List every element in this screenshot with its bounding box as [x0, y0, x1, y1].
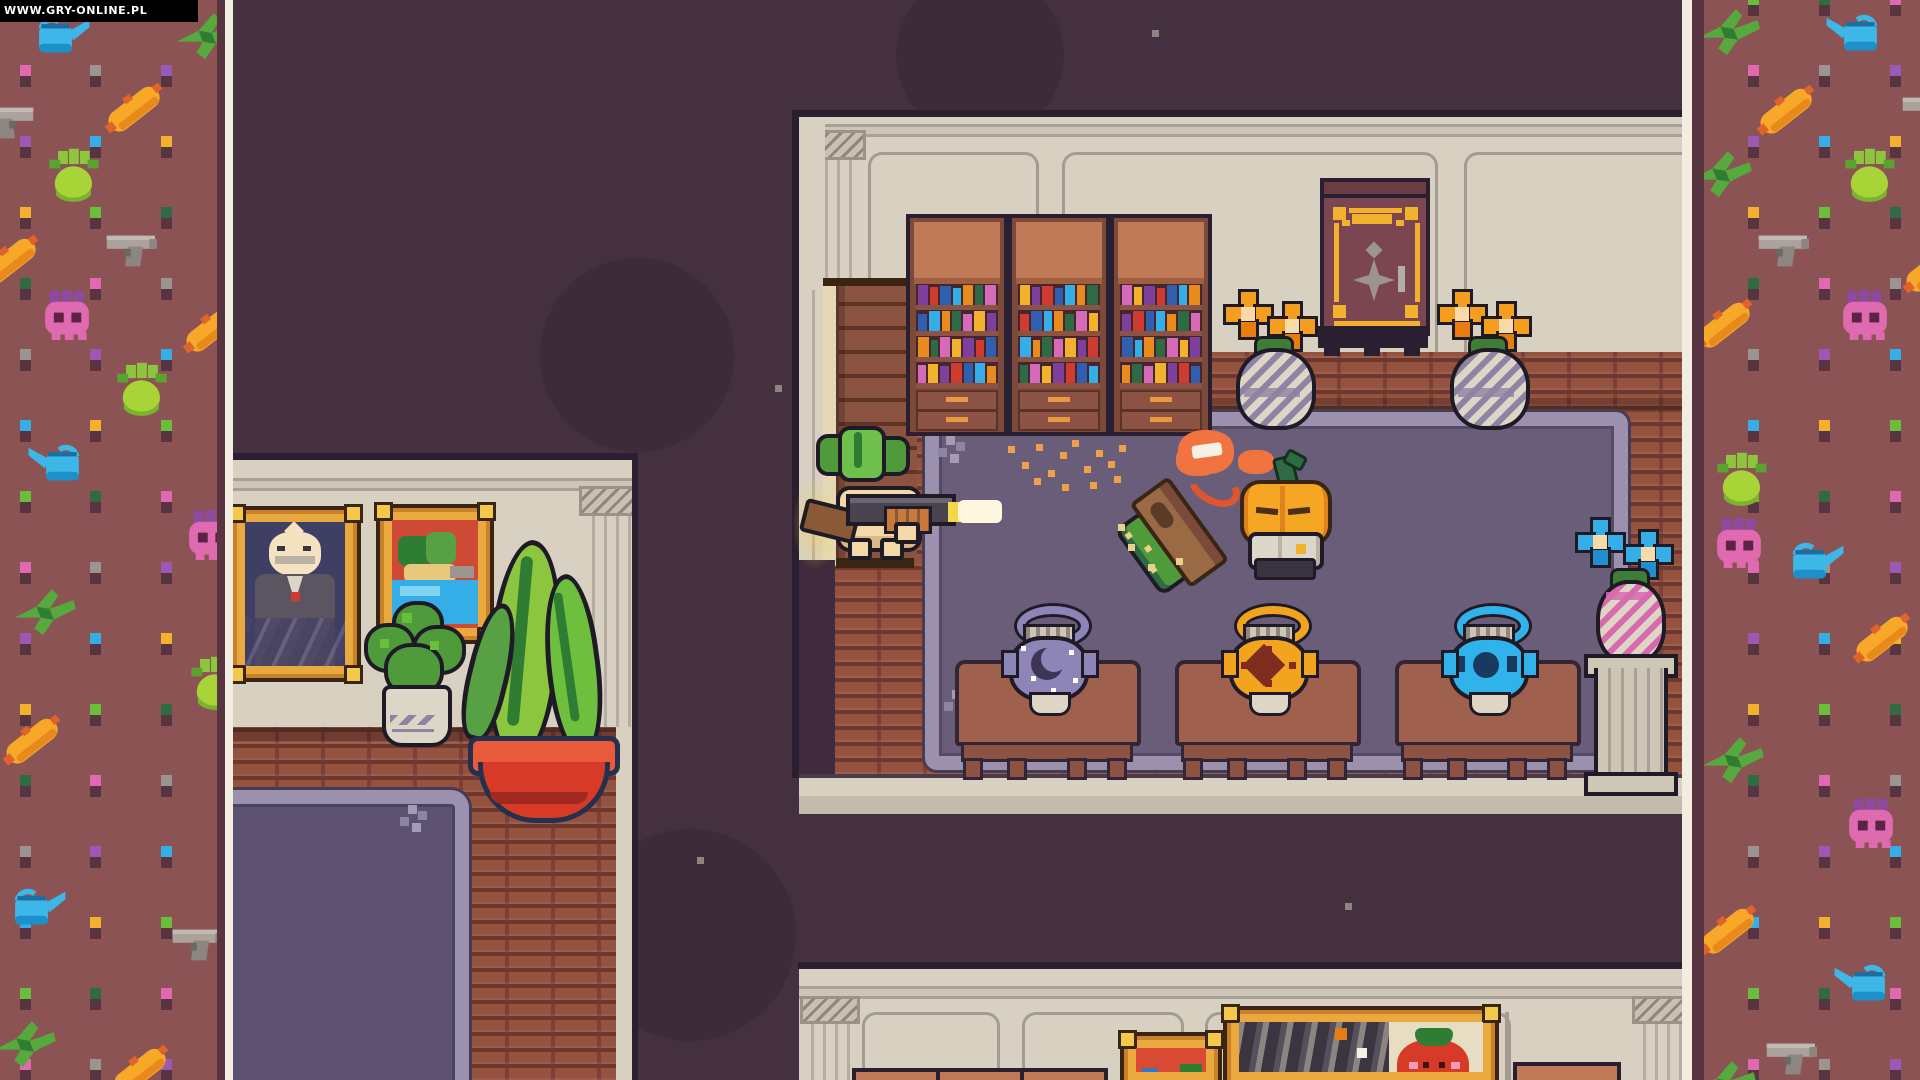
portrait-eye-left — [277, 546, 285, 551]
bookcase-top-panel — [1118, 222, 1204, 284]
pattern-square-shadow — [1819, 857, 1830, 868]
pattern-square-shadow — [1748, 999, 1759, 1010]
dust-speck — [775, 385, 782, 392]
pattern-square — [1748, 349, 1759, 360]
impact-particle — [1108, 461, 1115, 468]
bookcase-top-panel — [914, 222, 1000, 284]
book — [963, 285, 973, 305]
flower-vase-left — [1226, 288, 1322, 428]
book-row — [1018, 362, 1100, 388]
portrait-tie — [291, 592, 300, 601]
chair-foot — [1227, 758, 1247, 780]
pattern-square-shadow — [90, 644, 101, 655]
gun-icon — [0, 96, 42, 150]
pattern-square-shadow — [1748, 573, 1759, 584]
pattern-square — [90, 65, 101, 76]
lower-left-opening — [799, 560, 835, 774]
pattern-square — [1819, 633, 1830, 644]
urn-foot — [1469, 692, 1511, 716]
book — [1191, 366, 1200, 383]
pattern-square — [161, 278, 172, 289]
book — [985, 285, 996, 305]
strawberry-leaf — [1415, 1028, 1453, 1046]
void-shade-blob — [527, 245, 747, 465]
urn-handle-right — [1521, 650, 1539, 678]
pattern-square — [1819, 65, 1830, 76]
chair-foot — [1067, 758, 1087, 780]
pattern-square-shadow — [1890, 431, 1901, 442]
book — [929, 311, 940, 331]
pattern-square — [1748, 65, 1759, 76]
pattern-square — [1890, 775, 1901, 786]
book — [942, 311, 950, 331]
flower-petal — [1499, 319, 1513, 333]
carrot-icon — [1750, 82, 1820, 136]
pattern-square — [161, 988, 172, 999]
impact-particle — [1008, 446, 1015, 453]
pattern-square-shadow — [20, 289, 31, 300]
chair-foot — [963, 758, 983, 780]
flower-petal — [1226, 307, 1241, 322]
pattern-square-shadow — [161, 786, 172, 797]
chair-foot — [1507, 758, 1527, 780]
pedestal-with-flowers — [1578, 518, 1682, 794]
pattern-square — [161, 562, 172, 573]
skull-icon — [1830, 290, 1900, 344]
book — [1167, 338, 1178, 357]
book-row — [1120, 310, 1202, 336]
wall-safe — [1318, 178, 1428, 374]
pattern-square — [1890, 704, 1901, 715]
book — [963, 338, 974, 357]
dust-speck — [697, 857, 704, 864]
pattern-square — [1748, 704, 1759, 715]
divider-right — [1682, 0, 1692, 1080]
pattern-square — [1819, 775, 1830, 786]
pattern-square-shadow — [161, 715, 172, 726]
book — [1167, 285, 1177, 305]
flower-petal — [1300, 319, 1315, 334]
pattern-square — [161, 633, 172, 644]
pattern-square — [20, 491, 31, 502]
pattern-square-shadow — [20, 502, 31, 513]
pattern-square-shadow — [1748, 644, 1759, 655]
urn-blue — [1441, 606, 1533, 720]
pattern-square-shadow — [1819, 289, 1830, 300]
pattern-square — [90, 420, 101, 431]
hall-cornice — [799, 986, 1682, 999]
border-right-shadow — [1692, 0, 1704, 1080]
pattern-square-shadow — [90, 786, 101, 797]
pattern-square — [1748, 207, 1759, 218]
pattern-square-shadow — [90, 502, 101, 513]
pattern-square — [1890, 491, 1901, 502]
book — [976, 340, 985, 357]
impact-particle — [1096, 450, 1103, 457]
book — [918, 285, 928, 305]
hall-column-left-capital — [800, 996, 860, 1024]
book — [987, 313, 996, 331]
book — [1065, 338, 1076, 357]
impact-particle — [1084, 466, 1091, 473]
player-hand — [894, 522, 920, 544]
vase-body — [1450, 348, 1530, 430]
portrait-mustache — [275, 556, 315, 564]
flower-petal — [1241, 292, 1256, 307]
pattern-square — [161, 420, 172, 431]
pattern-square-shadow — [1890, 218, 1901, 229]
safe-handle — [1398, 266, 1405, 292]
book — [1066, 363, 1075, 383]
pattern-square — [20, 420, 31, 431]
book — [1167, 314, 1176, 331]
pattern-square-shadow — [161, 644, 172, 655]
urn-handle-left — [1221, 650, 1239, 678]
carrot-icon — [98, 80, 168, 134]
pattern-square-shadow — [1890, 573, 1901, 584]
divider-left — [225, 0, 233, 1080]
book-row — [1120, 284, 1202, 310]
urn-handle-right — [1081, 650, 1099, 678]
decor-border-right — [1704, 0, 1920, 1080]
impact-particle — [1034, 478, 1041, 485]
pattern-square-shadow — [1748, 786, 1759, 797]
impact-particle — [1062, 484, 1069, 491]
can-icon — [1780, 534, 1850, 588]
bookcase-top-panel — [1016, 222, 1102, 284]
orange-flower — [1226, 292, 1270, 336]
pattern-square — [1748, 988, 1759, 999]
bookcase-shelves — [916, 284, 998, 386]
urn-purple-moon — [1001, 606, 1093, 720]
book — [1157, 288, 1165, 305]
pattern-square-shadow — [1819, 928, 1830, 939]
book — [1020, 365, 1028, 383]
book — [1179, 285, 1188, 305]
urn-gold-sun — [1221, 606, 1313, 720]
flower-petal — [1241, 307, 1255, 321]
book — [1190, 337, 1200, 357]
pattern-square-shadow — [1819, 786, 1830, 797]
game-viewport[interactable]: WWW.GRY-ONLINE.PL — [0, 0, 1920, 1080]
pattern-square — [1890, 65, 1901, 76]
pattern-square-shadow — [1890, 786, 1901, 797]
urn-foot — [1029, 692, 1071, 716]
gun-icon — [1894, 86, 1920, 140]
pattern-square-shadow — [161, 431, 172, 442]
bookcase-drawer — [1018, 390, 1100, 411]
pattern-square-shadow — [1890, 5, 1901, 16]
impact-particle — [1119, 445, 1126, 452]
bird-icon — [1704, 1056, 1758, 1080]
book — [1089, 313, 1098, 331]
pattern-square — [90, 491, 101, 502]
pattern-square — [1890, 917, 1901, 928]
book — [1044, 311, 1052, 331]
pumpkin-badge — [1296, 544, 1306, 554]
bookcase — [1110, 214, 1212, 436]
pattern-square-shadow — [1748, 360, 1759, 371]
swirl-houseplant — [462, 540, 622, 840]
skull-icon — [32, 290, 102, 344]
book-row — [1018, 310, 1100, 336]
pattern-square — [1819, 917, 1830, 928]
book — [1144, 286, 1155, 305]
book — [1053, 363, 1064, 383]
impact-particle — [1114, 476, 1121, 483]
pattern-square — [1890, 349, 1901, 360]
pattern-square — [90, 207, 101, 218]
pattern-square-shadow — [20, 76, 31, 87]
pattern-square-shadow — [1890, 715, 1901, 726]
book — [1122, 337, 1133, 357]
abstract-section — [1239, 1022, 1389, 1072]
book — [1156, 311, 1166, 331]
player-leaf-vein — [854, 432, 862, 468]
bird-icon — [1704, 4, 1762, 58]
pattern-square — [161, 846, 172, 857]
pattern-square-shadow — [1890, 502, 1901, 513]
book — [1032, 287, 1041, 305]
book — [931, 340, 939, 357]
book-row — [916, 362, 998, 388]
pattern-square — [1890, 207, 1901, 218]
bookcase-shelves — [1018, 284, 1100, 386]
book — [918, 337, 929, 357]
pattern-square — [161, 491, 172, 502]
chair-foot — [1447, 758, 1467, 780]
book — [1134, 287, 1143, 305]
pattern-square-shadow — [1819, 360, 1830, 371]
book — [928, 364, 938, 383]
pattern-square — [90, 846, 101, 857]
skull-icon — [1704, 518, 1774, 572]
pumpkin-citizen-npc — [1240, 456, 1332, 576]
border-left-shadow — [217, 0, 225, 1080]
pattern-square — [90, 775, 101, 786]
flower-petal — [1241, 322, 1256, 337]
book — [1144, 337, 1154, 357]
urn-sun — [1243, 644, 1285, 686]
flower-petal — [1470, 307, 1485, 322]
impact-particle — [1022, 462, 1029, 469]
book — [1042, 366, 1051, 383]
book — [1088, 337, 1098, 357]
book — [1089, 366, 1098, 383]
book — [953, 288, 961, 305]
urn-sun-dots — [1241, 662, 1248, 669]
bird-icon — [8, 584, 78, 638]
chair-foot — [1007, 758, 1027, 780]
bookcase-drawer — [1120, 390, 1202, 411]
bird-icon — [1704, 146, 1754, 200]
pattern-square — [1748, 633, 1759, 644]
book — [975, 285, 984, 305]
pattern-square — [1819, 207, 1830, 218]
book — [1065, 314, 1074, 331]
hall-right-wall-gap — [1505, 1012, 1509, 1080]
onion-portrait-painting — [233, 506, 361, 682]
carrot-icon — [1846, 610, 1916, 664]
book — [940, 337, 950, 357]
pattern-square-shadow — [1819, 502, 1830, 513]
book — [1179, 363, 1189, 383]
book — [951, 363, 962, 383]
carrot-icon — [0, 232, 44, 286]
skull-icon — [176, 510, 217, 564]
book-row — [1120, 336, 1202, 362]
pattern-square — [90, 633, 101, 644]
book — [1020, 337, 1031, 357]
book — [1155, 363, 1166, 383]
book — [1146, 311, 1154, 331]
bookcase — [1008, 214, 1110, 436]
pattern-square-shadow — [20, 1070, 31, 1080]
gun-icon — [1758, 1032, 1828, 1080]
impact-particle — [1090, 482, 1097, 489]
book — [1055, 288, 1063, 305]
pattern-square-shadow — [20, 999, 31, 1010]
skull-icon — [1836, 798, 1906, 852]
pattern-square-shadow — [20, 573, 31, 584]
urn-handle-right — [1301, 650, 1319, 678]
hall-furniture-top-3 — [1020, 1068, 1108, 1080]
urn-handle-left — [1001, 650, 1019, 678]
flower-petal — [1285, 319, 1299, 333]
flower-petal — [1455, 307, 1469, 321]
flower-vase-right — [1440, 288, 1536, 428]
pattern-square — [1819, 349, 1830, 360]
pattern-square-shadow — [1819, 218, 1830, 229]
book — [1191, 313, 1200, 331]
flower-petal — [1285, 304, 1300, 319]
pattern-square — [90, 278, 101, 289]
impact-particle — [1060, 452, 1067, 459]
book — [1133, 311, 1144, 331]
pattern-square-shadow — [1890, 1070, 1901, 1080]
pattern-square-shadow — [90, 999, 101, 1010]
pattern-square — [90, 562, 101, 573]
decor-border-left — [0, 0, 217, 1080]
pattern-square — [1748, 420, 1759, 431]
pattern-square — [90, 136, 101, 147]
turnip-icon — [102, 362, 172, 416]
pattern-square-shadow — [20, 857, 31, 868]
book — [974, 311, 985, 331]
book — [987, 366, 996, 383]
flower-petal — [1484, 319, 1499, 334]
book — [1122, 314, 1131, 331]
small-red-painting — [1120, 1032, 1222, 1080]
pattern-square — [1748, 278, 1759, 289]
book — [1144, 366, 1153, 383]
carrot-icon — [104, 1042, 174, 1080]
player-leaf-mid — [838, 426, 886, 482]
chair-foot — [1287, 758, 1307, 780]
book — [952, 339, 961, 357]
book — [1168, 363, 1177, 383]
portrait-eye-right — [303, 546, 311, 551]
can-icon — [2, 880, 72, 934]
book — [1076, 311, 1087, 331]
flower-petal — [1514, 319, 1529, 334]
portrait-texture — [245, 618, 345, 666]
pattern-square-shadow — [1748, 857, 1759, 868]
pattern-square-shadow — [20, 786, 31, 797]
pattern-square-shadow — [161, 289, 172, 300]
pattern-square-shadow — [90, 573, 101, 584]
pattern-square-shadow — [1819, 644, 1830, 655]
pattern-square-shadow — [90, 715, 101, 726]
pattern-square — [1819, 278, 1830, 289]
book — [940, 366, 949, 383]
vase-body — [1236, 348, 1316, 430]
hall-column-right-capital — [1632, 996, 1682, 1024]
turnip-icon — [1704, 452, 1772, 506]
pattern-square-shadow — [161, 857, 172, 868]
book — [1078, 340, 1087, 357]
pattern-square — [20, 988, 31, 999]
book — [1180, 340, 1189, 357]
turnip-icon — [1830, 148, 1900, 202]
urn-pattern — [1473, 652, 1499, 678]
landscape-water-light — [400, 586, 440, 596]
book — [1020, 314, 1029, 331]
book-row — [1018, 284, 1100, 310]
carrot-icon — [1896, 240, 1920, 294]
flower-petal — [1440, 307, 1455, 322]
gallery-column-capital — [579, 486, 637, 516]
book — [1178, 311, 1189, 331]
book — [975, 363, 985, 383]
urn-handle-left — [1441, 650, 1459, 678]
pattern-square — [1819, 420, 1830, 431]
pattern-square — [161, 775, 172, 786]
book — [1122, 285, 1132, 305]
bush-houseplant — [356, 601, 470, 777]
fallen-signpost-enemy — [1118, 428, 1258, 583]
pattern-square-shadow — [90, 360, 101, 371]
muzzle-flash — [958, 500, 1002, 523]
bookcase-drawer — [916, 390, 998, 411]
flower-petal — [1499, 304, 1514, 319]
pattern-square — [1890, 420, 1901, 431]
book — [930, 287, 939, 305]
flower-petal — [1270, 319, 1285, 334]
carrot-icon — [1704, 296, 1758, 350]
book — [1189, 285, 1200, 305]
book — [1054, 339, 1063, 357]
pedestal-column — [1594, 668, 1668, 774]
book — [1135, 340, 1143, 357]
bush-pot — [382, 685, 452, 747]
pattern-square — [1819, 136, 1830, 147]
gallery-rug — [233, 790, 469, 1080]
dust-speck — [1152, 30, 1159, 37]
hall-furniture-top-2 — [936, 1068, 1024, 1080]
book — [1156, 339, 1165, 357]
dust-speck — [1345, 903, 1352, 910]
pattern-square-shadow — [20, 360, 31, 371]
pattern-square-shadow — [1819, 147, 1830, 158]
book — [918, 314, 927, 331]
orange-flower — [1440, 292, 1484, 336]
book — [963, 314, 972, 331]
turnip-boy-player — [796, 426, 1006, 566]
game-world — [233, 0, 1682, 1080]
pattern-square — [90, 349, 101, 360]
pattern-square-shadow — [1890, 857, 1901, 868]
